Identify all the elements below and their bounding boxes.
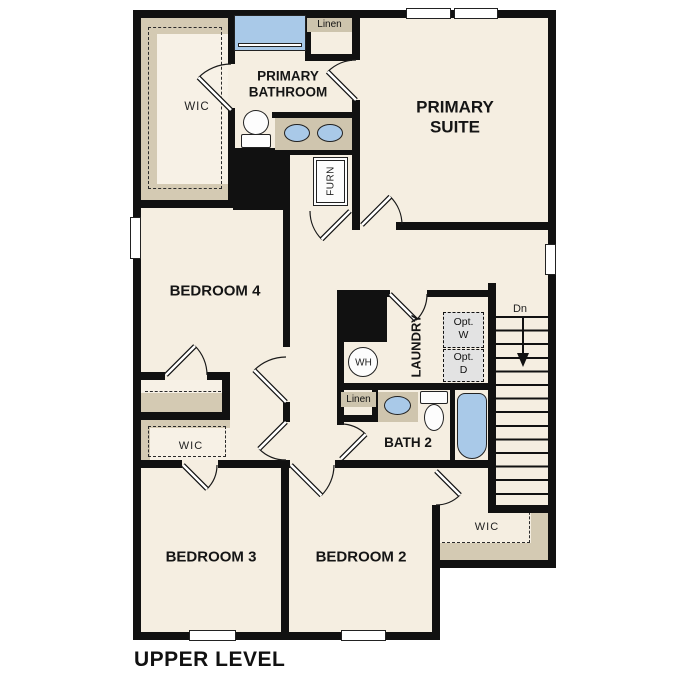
wall: [283, 402, 290, 422]
wall: [488, 283, 496, 513]
window: [341, 630, 386, 641]
bath2-linen-closet: Linen: [341, 392, 376, 407]
wall: [133, 10, 141, 640]
wall: [396, 222, 548, 230]
water-heater-label: WH: [355, 357, 372, 368]
bathtub: [457, 393, 487, 459]
bedroom4-label: BEDROOM 4: [170, 282, 261, 299]
wall: [335, 460, 432, 468]
bath2-label: BATH 2: [384, 435, 432, 451]
primary-bathroom-line1: PRIMARY: [257, 68, 319, 83]
chase-block: [233, 148, 290, 210]
window: [130, 217, 141, 259]
wall: [305, 54, 352, 61]
stairs-down-label: Dn: [513, 303, 527, 315]
laundry-label: LAUNDRY: [410, 314, 425, 377]
wall: [450, 390, 455, 465]
bath2-toilet-tank: [420, 391, 448, 404]
wall: [218, 460, 290, 468]
wall: [337, 383, 495, 390]
wall: [352, 18, 360, 60]
window: [454, 8, 498, 19]
window: [545, 244, 556, 275]
primary-linen-label: Linen: [317, 19, 341, 30]
wall: [141, 460, 182, 468]
primary-bathroom-label: PRIMARY BATHROOM: [249, 68, 328, 99]
bedroom2-wic-shelf-right: [531, 513, 548, 545]
bedroom3-label: BEDROOM 3: [166, 548, 257, 565]
wall: [432, 560, 556, 568]
wall: [141, 412, 230, 420]
primary-toilet-bowl: [243, 110, 269, 135]
bedroom4-closet-shelf: [141, 393, 222, 412]
furnace-label: FURN: [326, 166, 337, 196]
wall: [548, 10, 556, 568]
primary-suite-line1: PRIMARY: [416, 97, 494, 116]
primary-vanity-sink-left: [284, 124, 310, 142]
wall: [427, 290, 495, 297]
optional-dryer-box: Opt. D: [443, 349, 484, 382]
plan-title: UPPER LEVEL: [134, 648, 285, 672]
wall: [490, 505, 548, 513]
wall: [432, 505, 440, 640]
primary-wic-label: WIC: [184, 101, 209, 113]
bedroom4-closet-shelf-dash: [145, 391, 221, 392]
floor-plan: Opt. W Opt. D Linen Linen: [0, 0, 687, 687]
optional-dryer-line2: D: [460, 364, 468, 376]
primary-bathroom-line2: BATHROOM: [249, 84, 328, 99]
wall: [352, 100, 360, 230]
optional-washer-line2: W: [459, 329, 469, 341]
staircase-treads: [496, 316, 548, 508]
wall: [283, 210, 290, 347]
bedroom3-wic-label: WIC: [179, 440, 203, 452]
bath2-linen-label: Linen: [346, 394, 370, 405]
wall: [432, 460, 495, 468]
window: [406, 8, 451, 19]
primary-toilet-tank: [241, 134, 271, 148]
optional-washer-line1: Opt.: [454, 316, 474, 328]
shower-pan-line: [238, 43, 302, 47]
bedroom2-wic-label: WIC: [475, 521, 499, 533]
primary-vanity-sink-right: [317, 124, 343, 142]
primary-suite-line2: SUITE: [430, 117, 480, 136]
bedroom2-label: BEDROOM 2: [316, 548, 407, 565]
wall: [133, 200, 235, 208]
wall: [281, 460, 289, 640]
bath2-toilet-bowl: [424, 404, 444, 431]
laundry-chase-block: [340, 292, 387, 342]
bath2-vanity-sink: [384, 396, 411, 415]
window: [189, 630, 236, 641]
primary-linen-closet: Linen: [307, 18, 352, 32]
wall: [141, 372, 165, 380]
optional-washer-box: Opt. W: [443, 312, 484, 348]
optional-dryer-line1: Opt.: [454, 351, 474, 363]
primary-suite-label: PRIMARY SUITE: [416, 97, 494, 136]
